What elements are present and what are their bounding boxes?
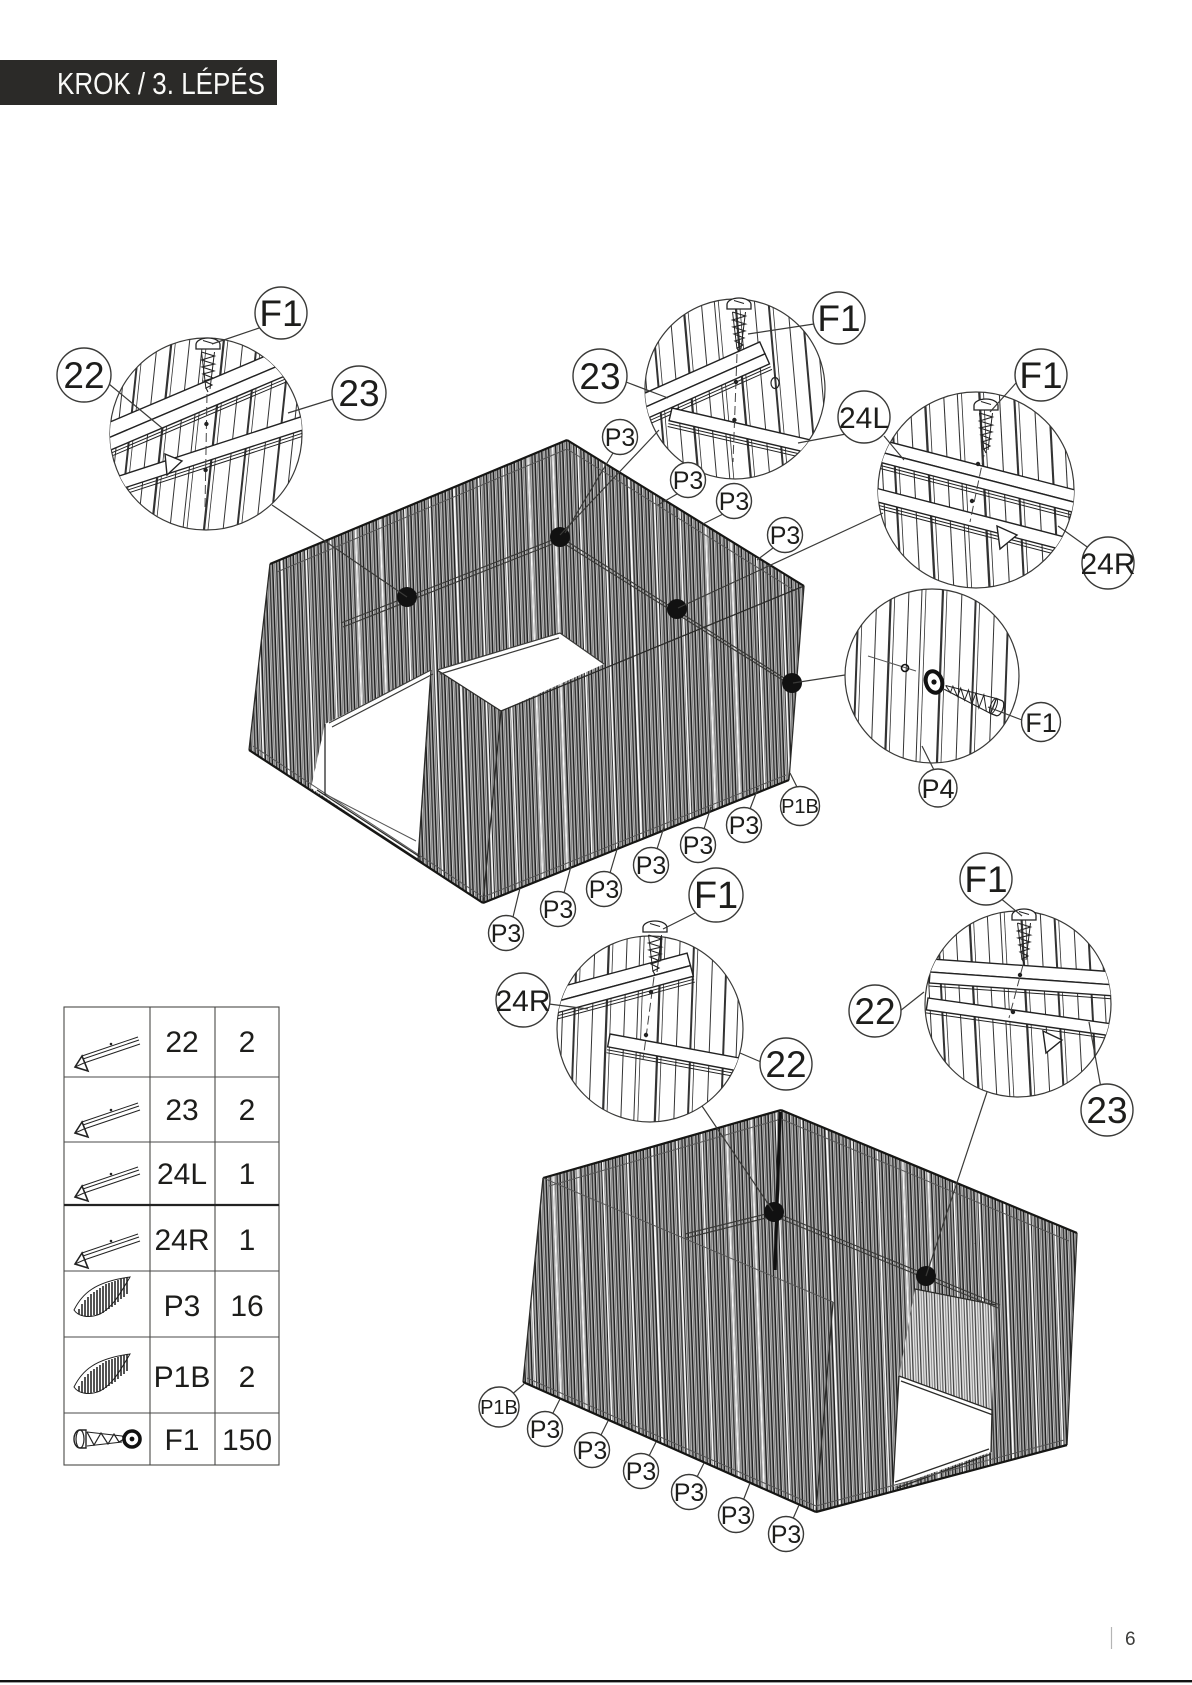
svg-text:P3: P3 [605,424,636,452]
svg-text:P3: P3 [683,832,714,860]
svg-text:24L: 24L [157,1158,207,1191]
svg-text:23: 23 [338,373,379,414]
svg-text:KROK / 3. LÉPÉS: KROK / 3. LÉPÉS [57,66,265,101]
svg-text:F1: F1 [694,875,738,917]
svg-text:F1: F1 [259,293,302,334]
svg-text:24R: 24R [1080,548,1135,581]
svg-text:150: 150 [222,1424,272,1457]
svg-text:P3: P3 [673,467,704,495]
svg-text:6: 6 [1125,1629,1136,1650]
svg-text:P3: P3 [589,876,620,904]
svg-text:P3: P3 [530,1416,561,1444]
svg-text:2: 2 [239,1026,256,1059]
svg-text:P3: P3 [674,1479,705,1507]
svg-text:2: 2 [239,1094,256,1127]
svg-text:22: 22 [165,1026,198,1059]
svg-text:P3: P3 [636,852,667,880]
svg-text:P3: P3 [577,1437,608,1465]
svg-text:P3: P3 [729,812,760,840]
svg-text:22: 22 [854,991,895,1032]
svg-text:22: 22 [765,1044,806,1085]
svg-text:1: 1 [239,1158,256,1191]
svg-text:F1: F1 [817,298,860,339]
svg-text:P1B: P1B [781,796,819,818]
svg-text:P3: P3 [164,1290,201,1323]
svg-text:16: 16 [230,1290,263,1323]
svg-text:P3: P3 [543,896,574,924]
svg-text:P4: P4 [921,774,954,804]
svg-text:F1: F1 [1025,708,1057,738]
svg-text:23: 23 [579,356,620,397]
svg-text:23: 23 [1086,1090,1127,1131]
svg-text:F1: F1 [164,1424,199,1457]
svg-text:P3: P3 [770,522,801,550]
svg-text:F1: F1 [964,859,1007,900]
svg-text:23: 23 [165,1094,198,1127]
svg-text:24R: 24R [154,1224,209,1257]
svg-text:P1B: P1B [154,1361,211,1394]
svg-text:2: 2 [239,1361,256,1394]
svg-text:P3: P3 [721,1502,752,1530]
svg-text:F1: F1 [1019,355,1062,396]
svg-text:P3: P3 [771,1521,802,1549]
svg-text:24L: 24L [839,402,889,435]
svg-text:P3: P3 [491,920,522,948]
svg-text:24R: 24R [495,985,550,1018]
svg-text:1: 1 [239,1224,256,1257]
svg-text:P1B: P1B [480,1397,518,1419]
svg-text:22: 22 [63,355,104,396]
svg-text:P3: P3 [719,488,750,516]
svg-text:P3: P3 [626,1458,657,1486]
